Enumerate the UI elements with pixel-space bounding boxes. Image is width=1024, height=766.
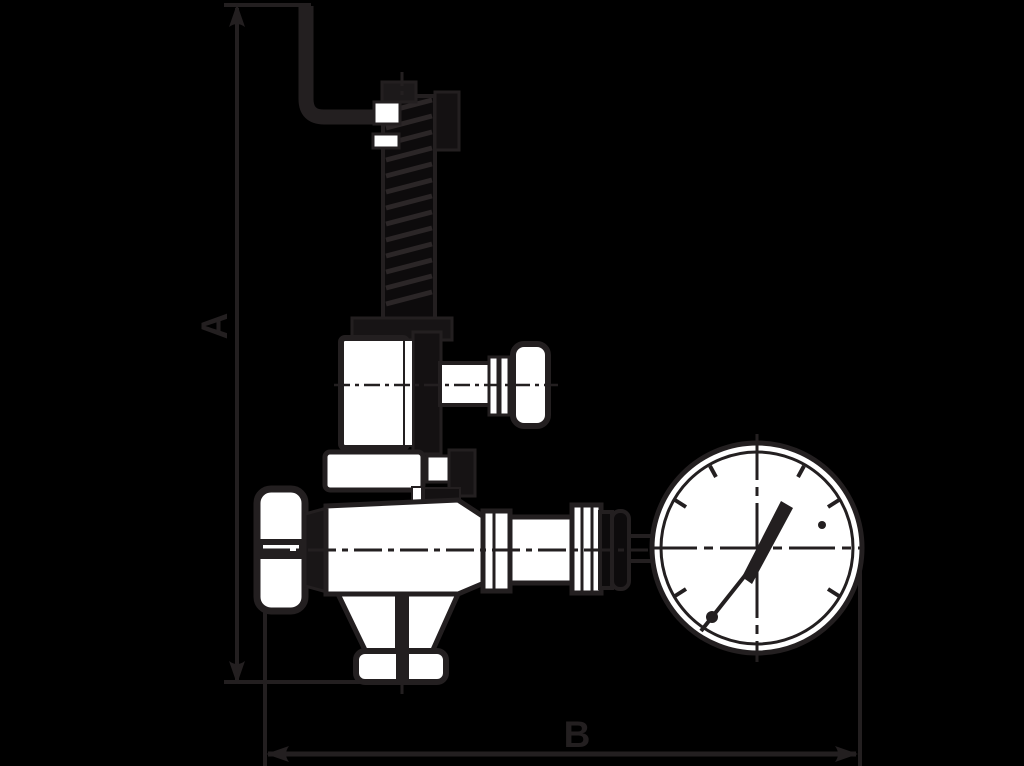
flange-body	[325, 452, 423, 490]
dimension-label-b: B	[564, 714, 591, 755]
arrowhead-left-icon	[266, 746, 289, 762]
cap-side-block	[435, 92, 459, 150]
technical-drawing-svg: A B	[0, 0, 1024, 766]
valve-body	[326, 500, 484, 682]
arrowhead-up-icon	[229, 4, 245, 27]
valve-assembly	[257, 6, 654, 698]
gauge-stop-pin	[706, 611, 718, 623]
bonnet	[341, 332, 441, 454]
mounting-bracket	[306, 6, 381, 117]
pressure-gauge	[651, 434, 864, 662]
gauge-dial-dot	[818, 521, 826, 529]
funnel-split-line	[395, 594, 409, 652]
body-casting	[326, 500, 484, 594]
bonnet-edge-strip	[404, 340, 413, 446]
adjusting-cap	[382, 82, 416, 102]
stem-housing	[413, 332, 441, 454]
adjusting-nut	[374, 102, 400, 124]
dimension-label-a: A	[194, 313, 235, 340]
drawing-canvas: A B	[0, 0, 1024, 766]
lock-nut	[373, 134, 399, 148]
arrowhead-right-icon	[835, 746, 858, 762]
flange-coupler	[427, 456, 449, 482]
bonnet-body	[341, 338, 407, 448]
